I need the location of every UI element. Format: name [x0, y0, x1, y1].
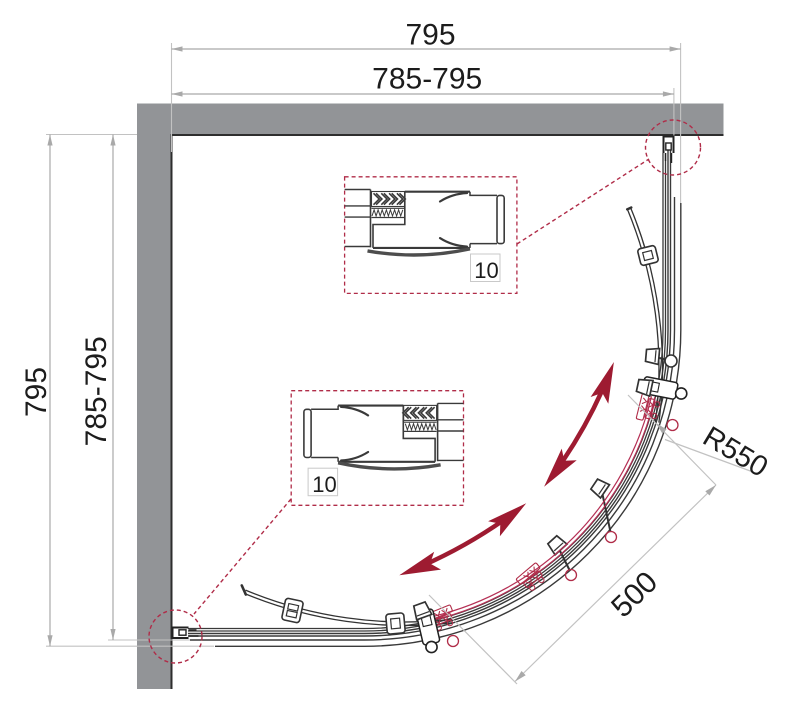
svg-text:795: 795: [405, 19, 455, 52]
svg-text:785-795: 785-795: [80, 336, 113, 446]
svg-text:785-795: 785-795: [372, 63, 482, 96]
svg-text:795: 795: [20, 367, 53, 417]
svg-text:10: 10: [474, 258, 498, 283]
svg-text:10: 10: [312, 472, 336, 497]
